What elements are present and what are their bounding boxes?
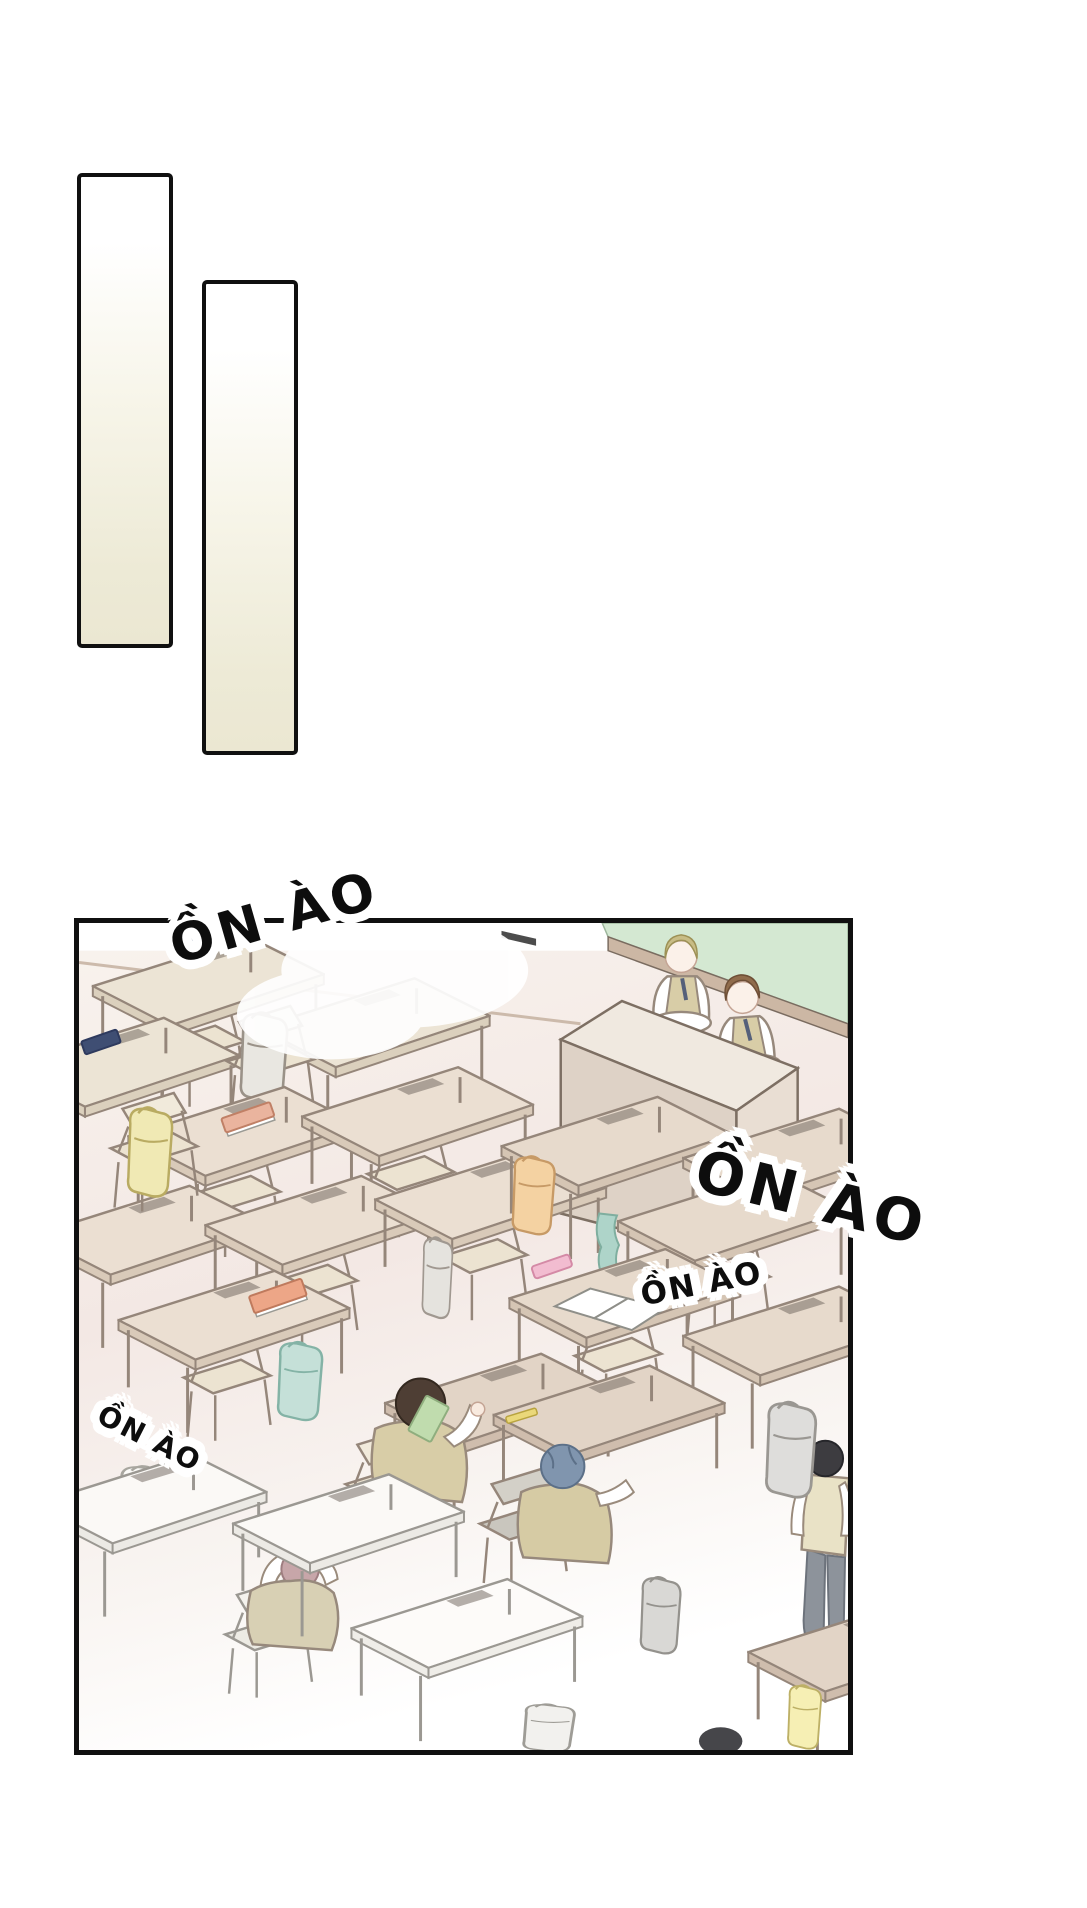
backpack-grey-floor [766,1402,815,1497]
classroom-scene [79,923,848,1750]
backpack-grey-2 [641,1577,681,1653]
backpack-yellow [128,1107,172,1196]
bag-yellow-corner [788,1685,821,1749]
classroom-panel [74,918,853,1755]
bag-orange [513,1156,555,1234]
comic-page: ỒN ÀO ỒN ÀO ỒN ÀO ỒN ÀO [0,0,1087,1908]
gradient-panel-1 [77,173,173,648]
gradient-panel-2 [202,280,298,755]
backpack-white-bottom [524,1704,575,1750]
backpack-grey-mid [422,1237,452,1318]
backpack-mint [278,1342,322,1420]
